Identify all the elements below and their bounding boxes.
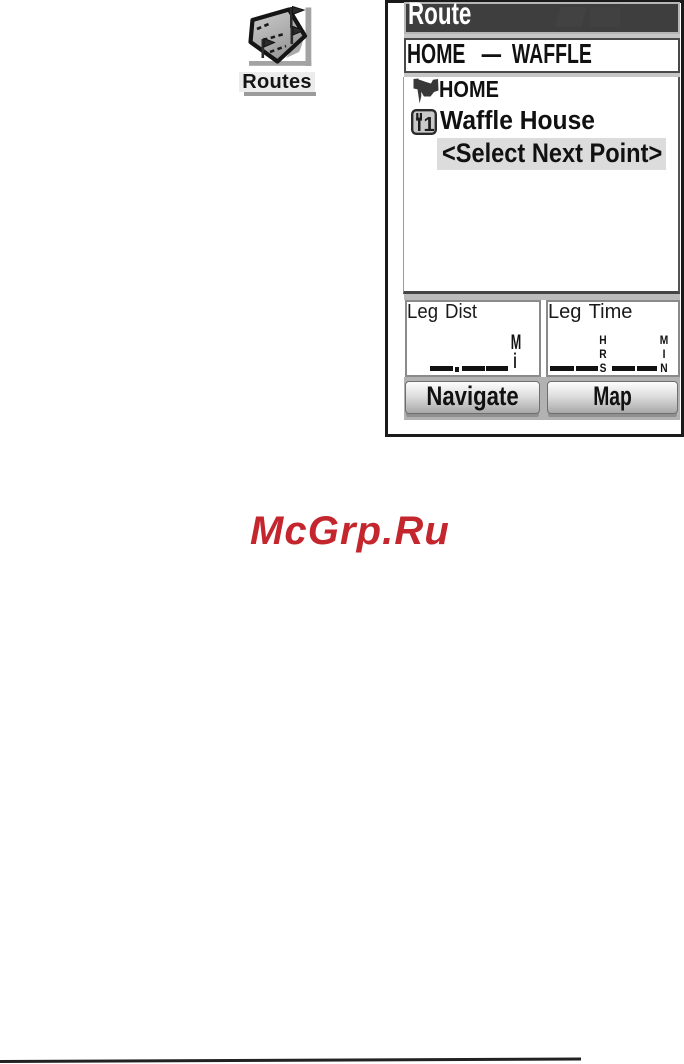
svg-text:1: 1 (423, 114, 434, 135)
